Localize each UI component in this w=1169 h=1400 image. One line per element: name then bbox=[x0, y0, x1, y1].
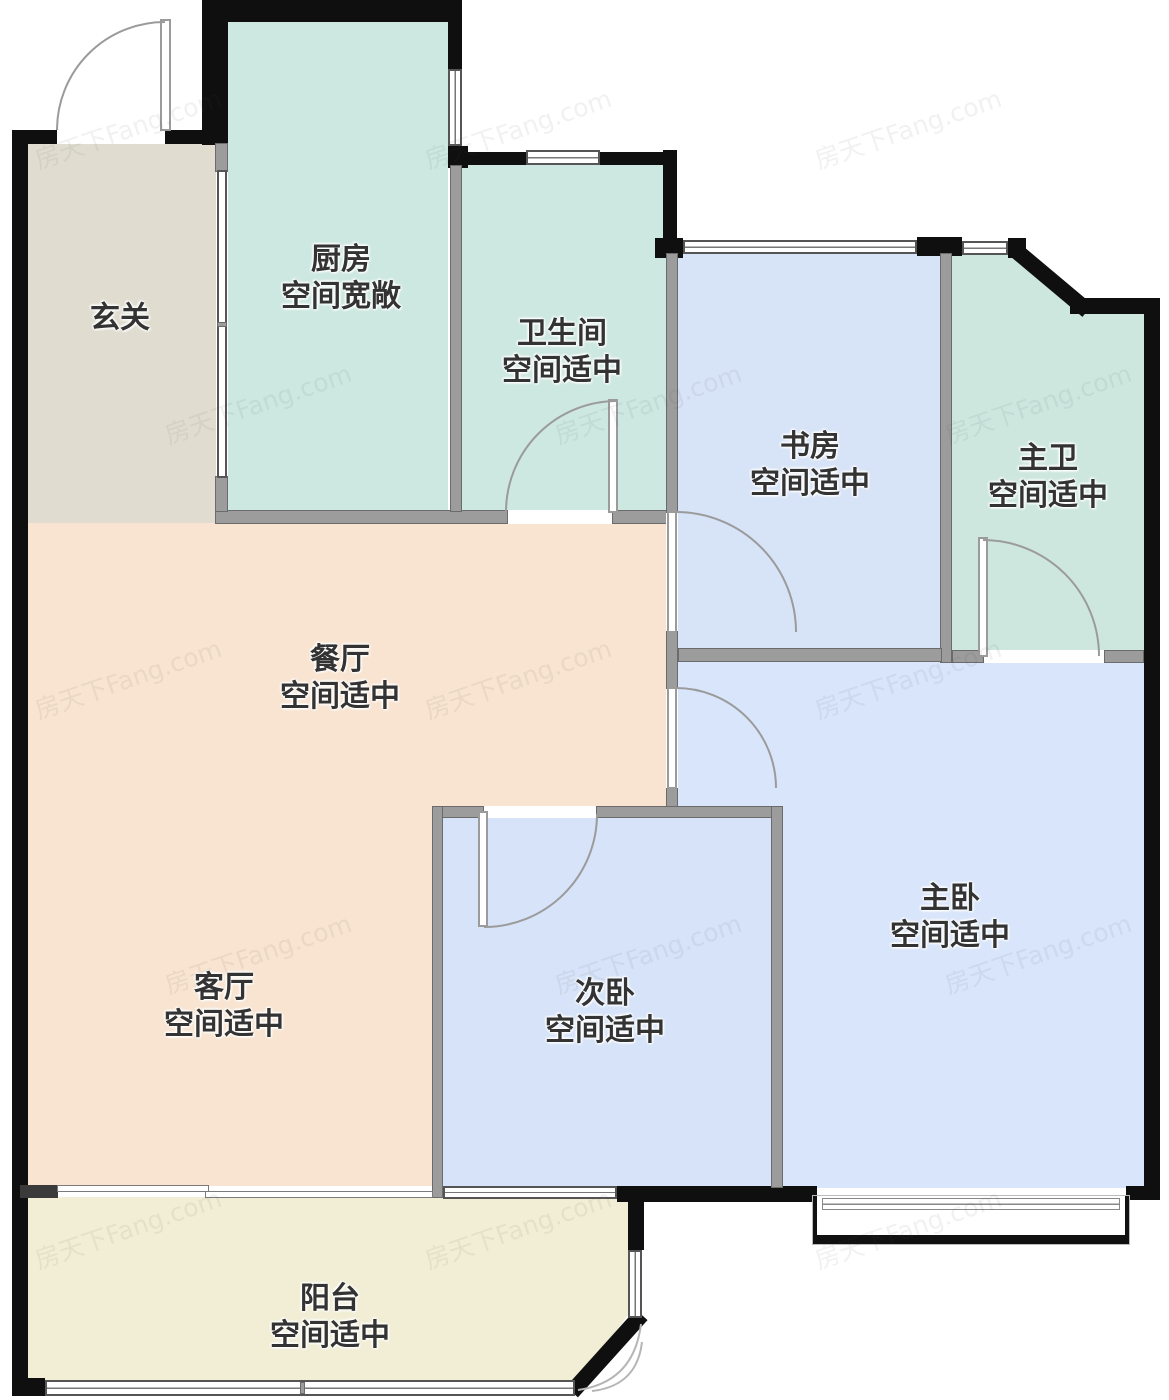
master-bathroom-label: 主卫 空间适中 bbox=[988, 440, 1108, 514]
master-bathroom-door-arc bbox=[983, 540, 1099, 656]
living-note: 空间适中 bbox=[164, 1006, 284, 1043]
front-door-arc bbox=[57, 22, 165, 130]
bathroom-door-leaf bbox=[609, 400, 617, 512]
study-door-leaf bbox=[668, 512, 676, 632]
balcony-corner-arc-1 bbox=[578, 1324, 641, 1390]
floor-plan: 玄关 厨房 空间宽敞 卫生间 空间适中 书房 空间适中 主卫 空间适中 餐厅 空… bbox=[0, 0, 1169, 1400]
master-bathroom-note: 空间适中 bbox=[988, 477, 1108, 514]
kitchen-name: 厨房 bbox=[281, 241, 401, 278]
balcony-note: 空间适中 bbox=[270, 1317, 390, 1354]
master-bedroom-name: 主卧 bbox=[890, 880, 1010, 917]
study-note: 空间适中 bbox=[750, 465, 870, 502]
bathroom-label: 卫生间 空间适中 bbox=[502, 315, 622, 389]
front-door-leaf bbox=[161, 20, 170, 130]
bedroom2-door-leaf bbox=[479, 812, 487, 926]
master-bathroom-door-leaf bbox=[979, 538, 987, 656]
master-bedroom-label: 主卧 空间适中 bbox=[890, 880, 1010, 954]
master-bedroom-door-leaf bbox=[668, 688, 676, 788]
bedroom2-label: 次卧 空间适中 bbox=[545, 975, 665, 1049]
dining-name: 餐厅 bbox=[280, 641, 400, 678]
bedroom2-door-arc bbox=[484, 814, 597, 927]
living-label: 客厅 空间适中 bbox=[164, 969, 284, 1043]
foyer-label: 玄关 bbox=[90, 300, 150, 337]
foyer-name: 玄关 bbox=[90, 300, 150, 337]
study-label: 书房 空间适中 bbox=[750, 428, 870, 502]
master-bedroom-note: 空间适中 bbox=[890, 917, 1010, 954]
kitchen-label: 厨房 空间宽敞 bbox=[281, 241, 401, 315]
study-door-arc bbox=[676, 512, 796, 632]
living-name: 客厅 bbox=[164, 969, 284, 1006]
bedroom2-note: 空间适中 bbox=[545, 1012, 665, 1049]
door-arcs-overlay bbox=[0, 0, 1169, 1400]
dining-label: 餐厅 空间适中 bbox=[280, 641, 400, 715]
kitchen-note: 空间宽敞 bbox=[281, 278, 401, 315]
dining-note: 空间适中 bbox=[280, 678, 400, 715]
master-bathroom-name: 主卫 bbox=[988, 440, 1108, 477]
master-bedroom-door-arc bbox=[676, 688, 776, 788]
bathroom-note: 空间适中 bbox=[502, 352, 622, 389]
study-name: 书房 bbox=[750, 428, 870, 465]
balcony-label: 阳台 空间适中 bbox=[270, 1280, 390, 1354]
bathroom-name: 卫生间 bbox=[502, 315, 622, 352]
balcony-name: 阳台 bbox=[270, 1280, 390, 1317]
bedroom2-name: 次卧 bbox=[545, 975, 665, 1012]
bathroom-door-arc bbox=[506, 401, 617, 512]
